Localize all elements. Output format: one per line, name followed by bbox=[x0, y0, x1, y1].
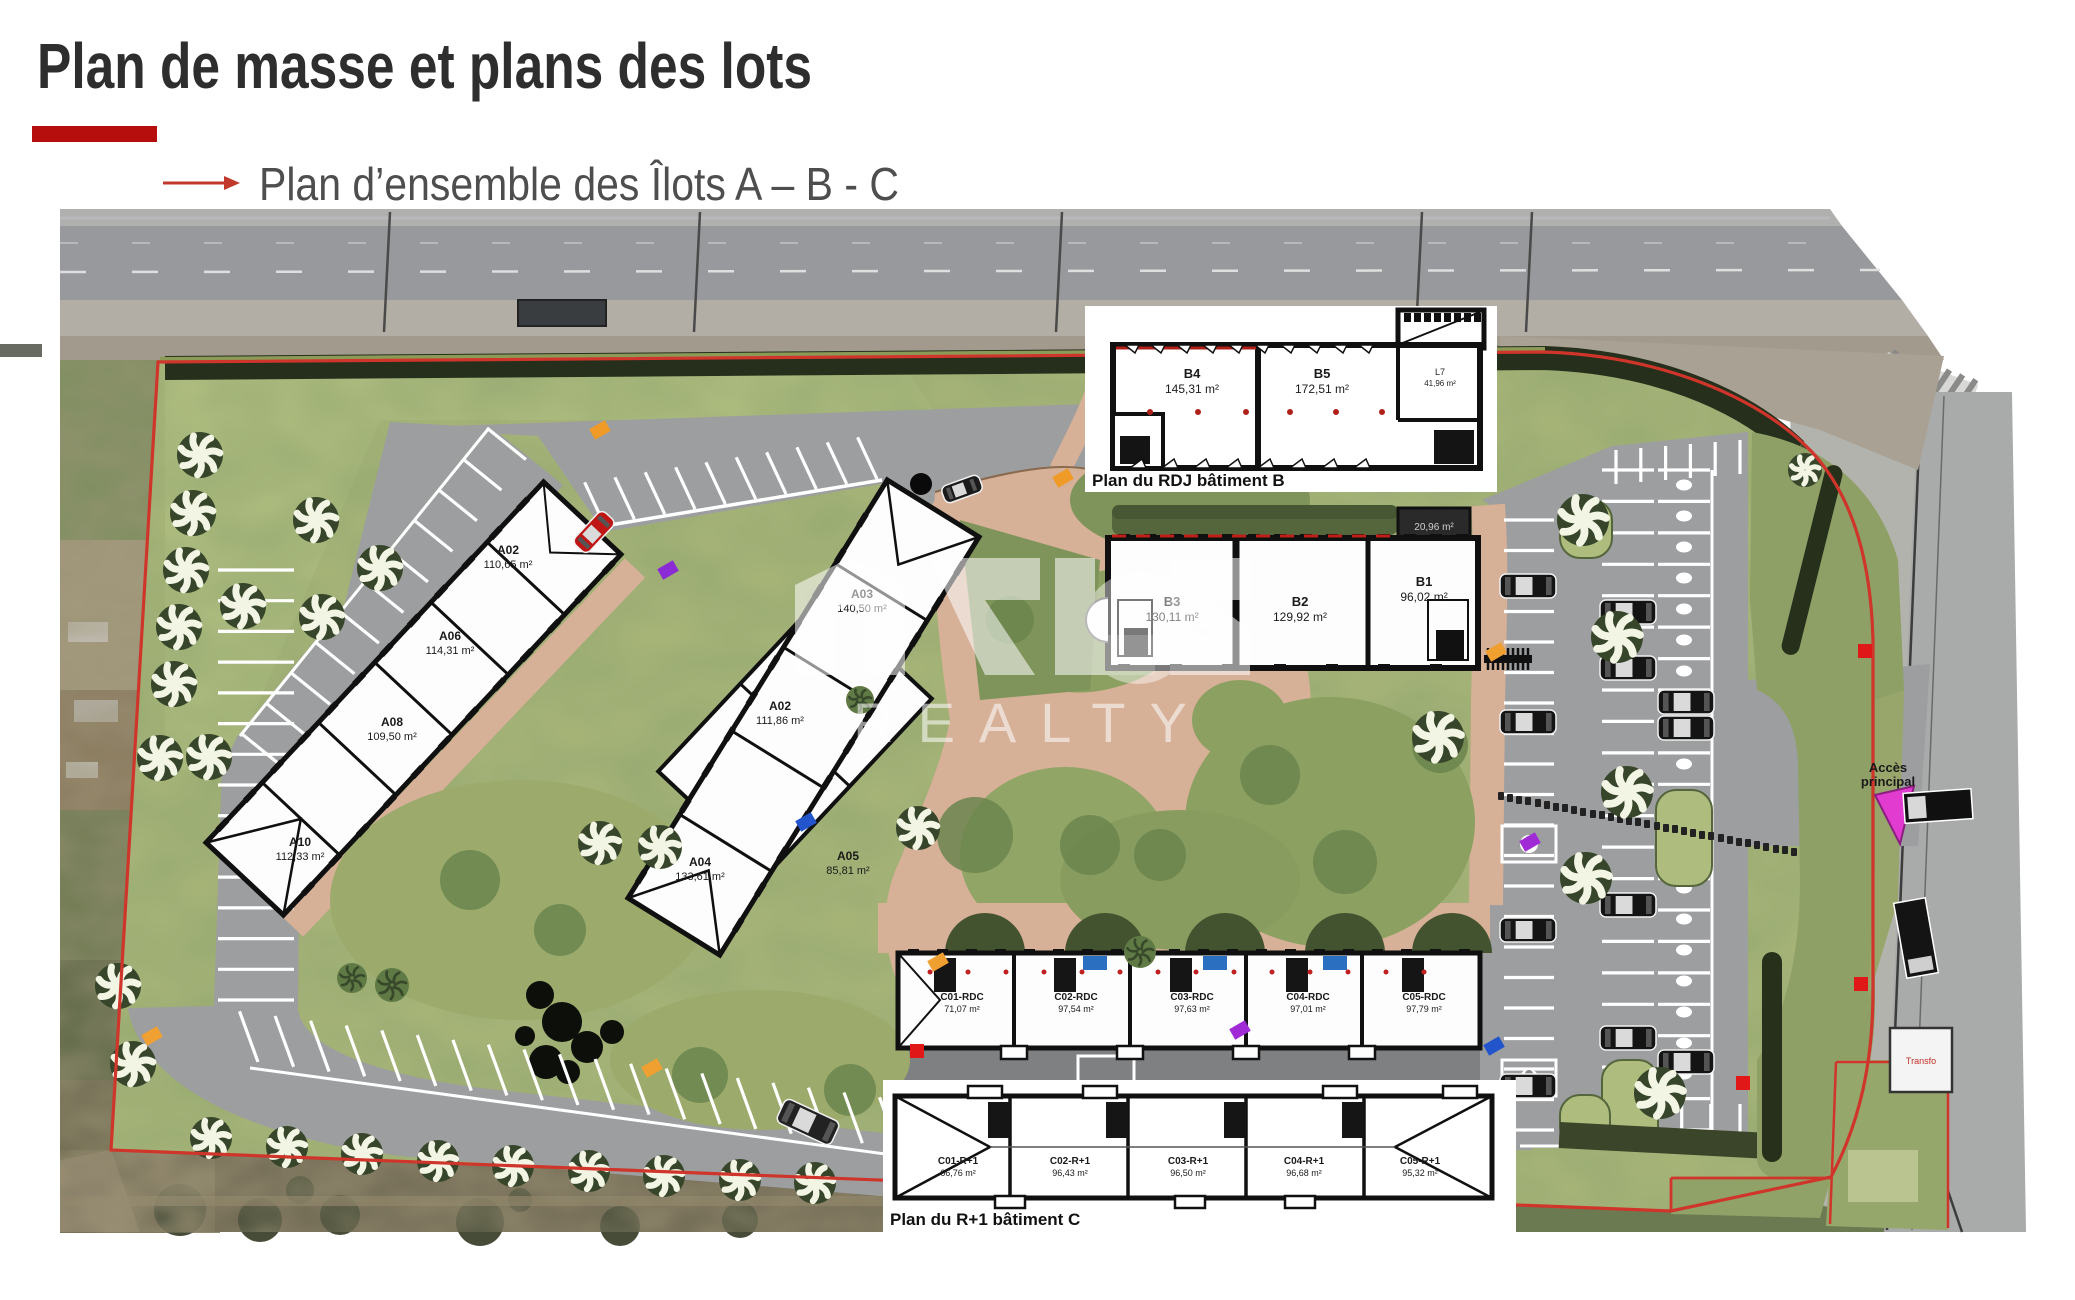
svg-text:96,02 m²: 96,02 m² bbox=[1400, 590, 1447, 604]
svg-text:97,63 m²: 97,63 m² bbox=[1174, 1004, 1210, 1014]
svg-text:110,65 m²: 110,65 m² bbox=[484, 559, 533, 571]
svg-text:A02: A02 bbox=[497, 543, 519, 557]
svg-text:97,54 m²: 97,54 m² bbox=[1058, 1004, 1094, 1014]
svg-text:95,32 m²: 95,32 m² bbox=[1402, 1168, 1438, 1178]
svg-text:A02: A02 bbox=[769, 699, 791, 713]
svg-text:20,96 m²: 20,96 m² bbox=[1414, 522, 1454, 533]
svg-text:85,81 m²: 85,81 m² bbox=[826, 865, 870, 877]
svg-text:A04: A04 bbox=[689, 855, 711, 869]
svg-text:B2: B2 bbox=[1292, 594, 1309, 609]
svg-text:97,01 m²: 97,01 m² bbox=[1290, 1004, 1326, 1014]
svg-text:C05-RDC: C05-RDC bbox=[1402, 992, 1445, 1003]
svg-text:A10: A10 bbox=[289, 835, 311, 849]
svg-text:96,50 m²: 96,50 m² bbox=[1170, 1168, 1206, 1178]
svg-text:66,76 m²: 66,76 m² bbox=[940, 1168, 976, 1178]
svg-text:145,31 m²: 145,31 m² bbox=[1165, 382, 1219, 396]
svg-text:96,43 m²: 96,43 m² bbox=[1052, 1168, 1088, 1178]
svg-text:B4: B4 bbox=[1184, 366, 1201, 381]
svg-text:C04-R+1: C04-R+1 bbox=[1284, 1156, 1325, 1167]
svg-text:Plan de masse et plans des lot: Plan de masse et plans des lots bbox=[37, 30, 812, 102]
svg-text:41,96 m²: 41,96 m² bbox=[1424, 379, 1456, 388]
svg-text:C01-RDC: C01-RDC bbox=[940, 992, 983, 1003]
svg-text:109,50 m²: 109,50 m² bbox=[367, 731, 417, 743]
svg-text:71,07 m²: 71,07 m² bbox=[944, 1004, 980, 1014]
svg-text:129,92 m²: 129,92 m² bbox=[1273, 610, 1327, 624]
svg-text:Transfo: Transfo bbox=[1906, 1056, 1936, 1066]
svg-text:Plan d’ensemble des Îlots A –: Plan d’ensemble des Îlots A – B - C bbox=[259, 158, 899, 210]
svg-text:A08: A08 bbox=[381, 715, 403, 729]
svg-text:C03-R+1: C03-R+1 bbox=[1168, 1156, 1209, 1167]
svg-text:97,79 m²: 97,79 m² bbox=[1406, 1004, 1442, 1014]
svg-text:Plan du RDJ bâtiment B: Plan du RDJ bâtiment B bbox=[1092, 471, 1285, 490]
svg-text:C02-R+1: C02-R+1 bbox=[1050, 1156, 1091, 1167]
svg-text:111,86 m²: 111,86 m² bbox=[756, 715, 804, 727]
svg-text:Plan du R+1 bâtiment C: Plan du R+1 bâtiment C bbox=[890, 1210, 1080, 1229]
svg-text:96,68 m²: 96,68 m² bbox=[1286, 1168, 1322, 1178]
svg-text:L7: L7 bbox=[1435, 367, 1445, 377]
svg-text:A05: A05 bbox=[837, 849, 859, 863]
svg-text:C03-RDC: C03-RDC bbox=[1170, 992, 1213, 1003]
svg-text:C04-RDC: C04-RDC bbox=[1286, 992, 1329, 1003]
svg-text:B5: B5 bbox=[1314, 366, 1331, 381]
svg-text:172,51 m²: 172,51 m² bbox=[1295, 382, 1349, 396]
svg-text:114,31 m²: 114,31 m² bbox=[426, 645, 475, 657]
svg-text:REALTY: REALTY bbox=[853, 691, 1211, 754]
svg-text:B1: B1 bbox=[1416, 574, 1433, 589]
svg-text:112,33 m²: 112,33 m² bbox=[276, 851, 325, 863]
svg-text:Accès: Accès bbox=[1869, 760, 1907, 775]
svg-text:C05-R+1: C05-R+1 bbox=[1400, 1156, 1441, 1167]
svg-text:C02-RDC: C02-RDC bbox=[1054, 992, 1097, 1003]
svg-text:C01-R+1: C01-R+1 bbox=[938, 1156, 979, 1167]
svg-text:A06: A06 bbox=[439, 629, 461, 643]
svg-text:133,61 m²: 133,61 m² bbox=[675, 871, 725, 883]
svg-text:principal: principal bbox=[1861, 774, 1915, 789]
